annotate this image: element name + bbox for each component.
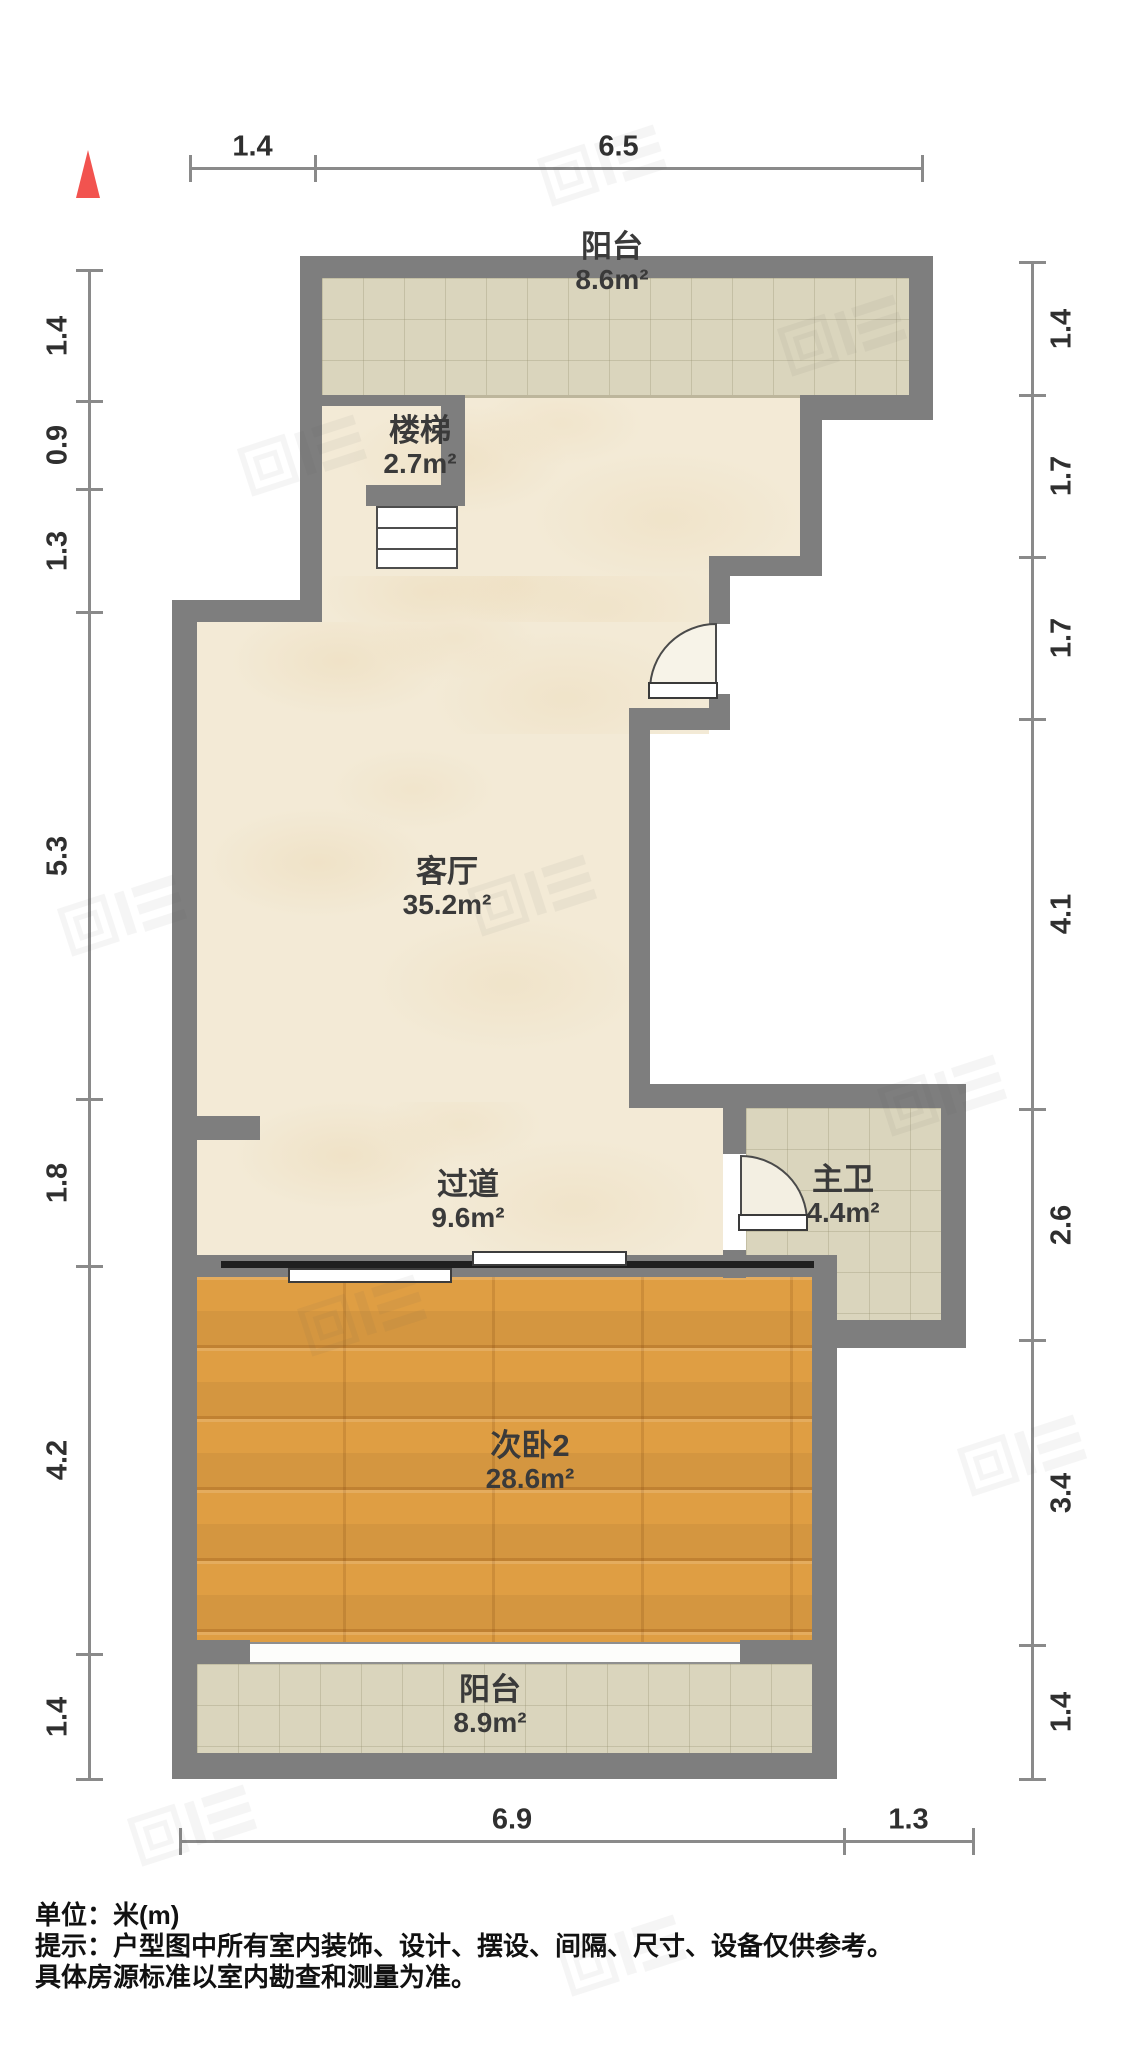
wall xyxy=(629,730,650,1102)
dimension-tick xyxy=(1019,261,1046,264)
room-name: 主卫 xyxy=(806,1163,879,1197)
watermark xyxy=(124,1768,285,1871)
wall xyxy=(629,1084,966,1108)
floor-plan-page: { "page": {"background": "#ffffff", "kin… xyxy=(0,0,1135,2048)
balcony-window xyxy=(250,1642,740,1664)
wall xyxy=(740,1640,837,1664)
dimension-tick xyxy=(76,1098,103,1101)
wall xyxy=(300,256,322,622)
dimension-tick xyxy=(843,1828,846,1855)
room-name: 阳台 xyxy=(575,230,648,264)
wall xyxy=(172,1753,837,1779)
dimension-label-left: 0.9 xyxy=(42,425,75,465)
dimension-label-right: 1.7 xyxy=(1046,618,1079,658)
wall xyxy=(800,398,822,576)
wall xyxy=(197,1116,260,1140)
dimension-tick xyxy=(179,1828,182,1855)
balcony-living-boundary xyxy=(465,395,800,398)
dimension-label-left: 1.4 xyxy=(42,315,75,355)
unit-note: 单位：米(m) xyxy=(35,1900,893,1931)
dimension-tick xyxy=(1019,394,1046,397)
dimension-tick xyxy=(314,155,317,182)
dimension-tick xyxy=(1019,1339,1046,1342)
dimension-line-left xyxy=(88,270,91,1779)
wall xyxy=(909,256,933,420)
balcony-top-label: 阳台8.6m² xyxy=(575,230,648,296)
balcony-bottom-label: 阳台8.9m² xyxy=(453,1673,526,1739)
dimension-label-left: 1.4 xyxy=(42,1696,75,1736)
dimension-tick xyxy=(1019,556,1046,559)
dimension-tick xyxy=(76,611,103,614)
dimension-tick xyxy=(1019,1778,1046,1781)
room-area: 28.6m² xyxy=(486,1463,575,1495)
dimension-tick xyxy=(1019,1108,1046,1111)
dimension-tick xyxy=(76,1778,103,1781)
dimension-label-left: 1.3 xyxy=(42,530,75,570)
north-arrow-icon xyxy=(76,150,100,198)
wall xyxy=(629,708,730,730)
room-area: 8.9m² xyxy=(453,1707,526,1739)
wall xyxy=(172,600,197,1779)
wall xyxy=(837,1320,966,1348)
dimension-label-right: 2.6 xyxy=(1046,1204,1079,1244)
room-name: 楼梯 xyxy=(383,414,456,448)
door-leaf xyxy=(738,1214,808,1231)
dimension-label-right: 4.1 xyxy=(1046,894,1079,934)
wall xyxy=(941,1084,966,1348)
room-area: 9.6m² xyxy=(431,1202,504,1234)
stairs-label: 楼梯2.7m² xyxy=(383,414,456,480)
watermark xyxy=(954,1398,1115,1501)
stairs-icon xyxy=(376,506,458,569)
dimension-tick xyxy=(76,488,103,491)
dimension-label-top: 1.4 xyxy=(232,131,272,164)
room-name: 阳台 xyxy=(453,1673,526,1707)
sliding-door-panel xyxy=(472,1251,627,1266)
footer-notes: 单位：米(m) 提示：户型图中所有室内装饰、设计、摆设、间隔、尺寸、设备仅供参考… xyxy=(35,1900,893,1993)
floor-plan: 阳台8.6m²楼梯2.7m²客厅35.2m²过道9.6m²主卫4.4m²次卧22… xyxy=(0,0,1135,2048)
dimension-label-left: 5.3 xyxy=(42,835,75,875)
dimension-label-right: 1.4 xyxy=(1046,308,1079,348)
room-area: 8.6m² xyxy=(575,264,648,296)
dimension-line-top xyxy=(190,167,922,170)
dimension-tick xyxy=(972,1828,975,1855)
dimension-tick xyxy=(76,1653,103,1656)
room-area: 4.4m² xyxy=(806,1197,879,1229)
sliding-door-panel xyxy=(288,1268,452,1283)
dimension-tick xyxy=(921,155,924,182)
room-name: 次卧2 xyxy=(486,1429,575,1463)
dimension-label-right: 3.4 xyxy=(1046,1472,1079,1512)
dimension-tick xyxy=(76,400,103,403)
room-name: 过道 xyxy=(431,1168,504,1202)
wall xyxy=(172,1640,250,1664)
wall xyxy=(723,1108,746,1154)
bedroom-2-label: 次卧228.6m² xyxy=(486,1429,575,1495)
disclaimer-note: 具体房源标准以室内勘查和测量为准。 xyxy=(35,1962,893,1993)
room-area: 2.7m² xyxy=(383,448,456,480)
door-leaf xyxy=(648,682,718,699)
dimension-label-top: 6.5 xyxy=(598,131,638,164)
dimension-line-right xyxy=(1031,262,1034,1779)
dimension-tick xyxy=(189,155,192,182)
dimension-label-left: 4.2 xyxy=(42,1440,75,1480)
dimension-tick xyxy=(1019,718,1046,721)
living-room-label: 客厅35.2m² xyxy=(403,855,492,921)
hallway-label: 过道9.6m² xyxy=(431,1168,504,1234)
dimension-tick xyxy=(76,1265,103,1268)
dimension-line-bottom xyxy=(180,1840,973,1843)
wall xyxy=(709,556,822,576)
dimension-label-right: 1.7 xyxy=(1046,456,1079,496)
dimension-tick xyxy=(76,269,103,272)
dimension-tick xyxy=(1019,1644,1046,1647)
wall xyxy=(812,1255,837,1779)
dimension-label-right: 1.4 xyxy=(1046,1692,1079,1732)
dimension-label-bottom: 1.3 xyxy=(888,1804,928,1837)
room-area: 35.2m² xyxy=(403,889,492,921)
room-name: 客厅 xyxy=(403,855,492,889)
master-bath-label: 主卫4.4m² xyxy=(806,1163,879,1229)
wall xyxy=(366,485,465,506)
disclaimer-note: 提示：户型图中所有室内装饰、设计、摆设、间隔、尺寸、设备仅供参考。 xyxy=(35,1931,893,1962)
dimension-label-left: 1.8 xyxy=(42,1162,75,1202)
dimension-label-bottom: 6.9 xyxy=(492,1804,532,1837)
